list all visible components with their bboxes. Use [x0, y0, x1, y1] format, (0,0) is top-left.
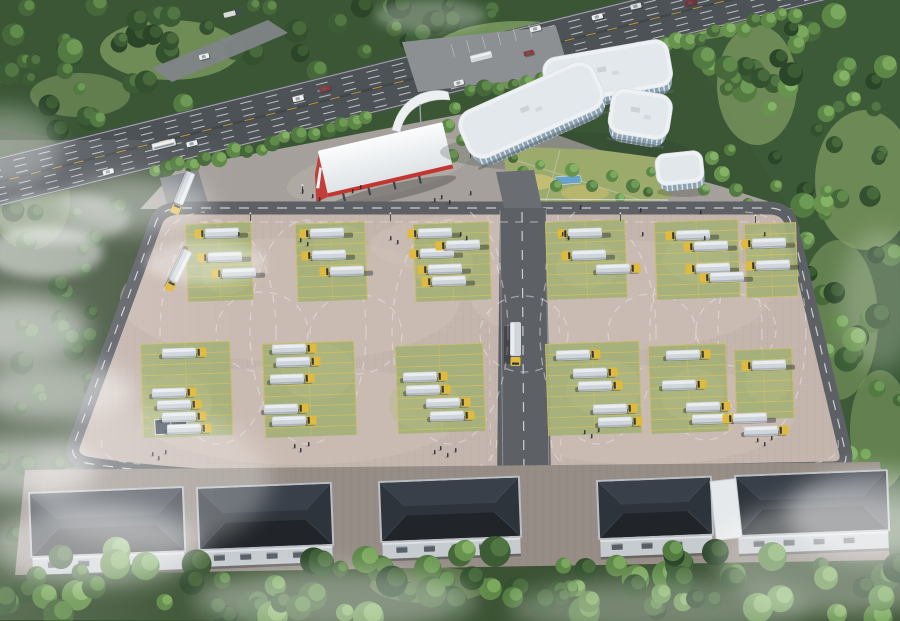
aerial-rendering: Aerial rendering of a truck depot and dr…: [0, 0, 900, 621]
rendering-canvas: [0, 0, 900, 621]
parking-block: [734, 348, 794, 420]
building-wing: [605, 86, 675, 149]
annex-building: [654, 150, 706, 193]
warehouse: [596, 476, 715, 560]
